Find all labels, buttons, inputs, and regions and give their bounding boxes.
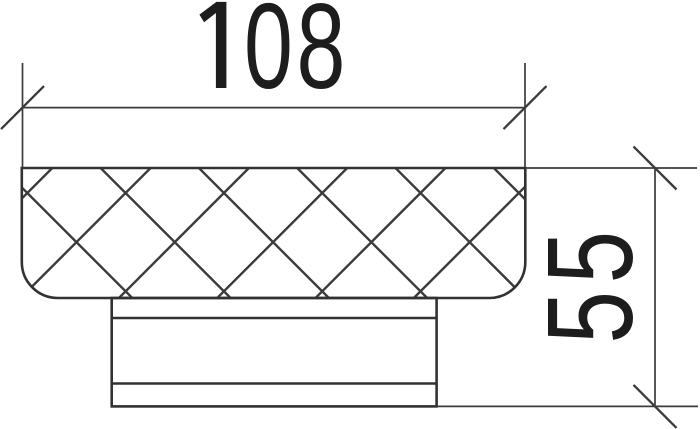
- svg-text:55: 55: [523, 223, 659, 343]
- svg-text:08: 08: [244, 0, 349, 114]
